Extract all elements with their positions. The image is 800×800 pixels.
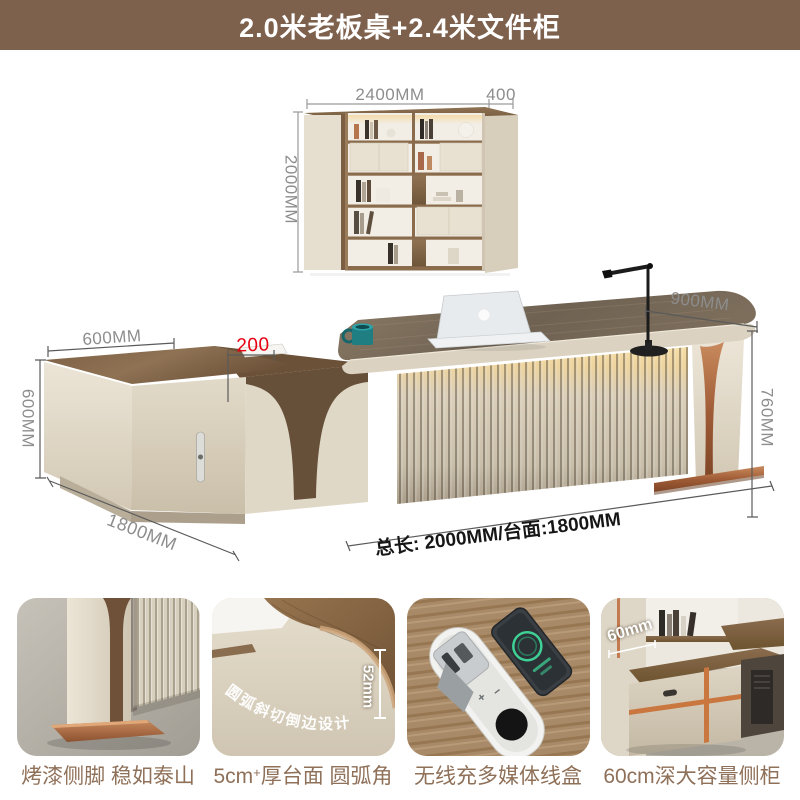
- feature-caption-sidecabinet: 60cm深大容量侧柜: [592, 760, 792, 790]
- feature-thumb-sidecabinet: 60mm: [601, 598, 784, 756]
- feature-thumb-mediabox: [407, 598, 590, 756]
- apple-logo-icon: [479, 310, 490, 321]
- product-dimension-page: { "header": { "title": "2.0米老板桌+2.4米文件柜"…: [0, 0, 800, 800]
- feature-thumb-tabletop: 圆弧斜切倒边设计 52mm: [212, 598, 395, 756]
- page-title: 2.0米老板桌+2.4米文件柜: [239, 6, 561, 45]
- pc-tower: [751, 670, 773, 724]
- desk-cabinet-height-label: 600MM: [20, 377, 37, 461]
- feature-caption-leg: 烤漆侧脚 稳如泰山: [8, 760, 208, 790]
- bookshelf-width-label: 2400MM: [328, 86, 452, 103]
- bookshelf-height-label: 2000MM: [283, 149, 300, 231]
- leg-closeup-art: [17, 598, 200, 756]
- thickness-note: 52mm: [360, 647, 377, 727]
- feature-thumb-leg: [17, 598, 200, 756]
- feature-caption-tabletop: 5cm+厚台面 圆弧角: [203, 760, 403, 790]
- desk-height-label: 760MM: [759, 376, 776, 460]
- feature-caption-mediabox: 无线充多媒体线盒: [398, 760, 598, 790]
- bookshelf-depth-label: 400: [473, 86, 529, 103]
- mediabox-closeup-art: [407, 598, 590, 756]
- header-bar: 2.0米老板桌+2.4米文件柜: [0, 0, 800, 50]
- desk-return-cabinet: [44, 344, 368, 524]
- desk-tier-offset-label: 200: [227, 335, 280, 356]
- desk-slat-panel: [397, 347, 688, 504]
- shelf-books: [659, 610, 696, 636]
